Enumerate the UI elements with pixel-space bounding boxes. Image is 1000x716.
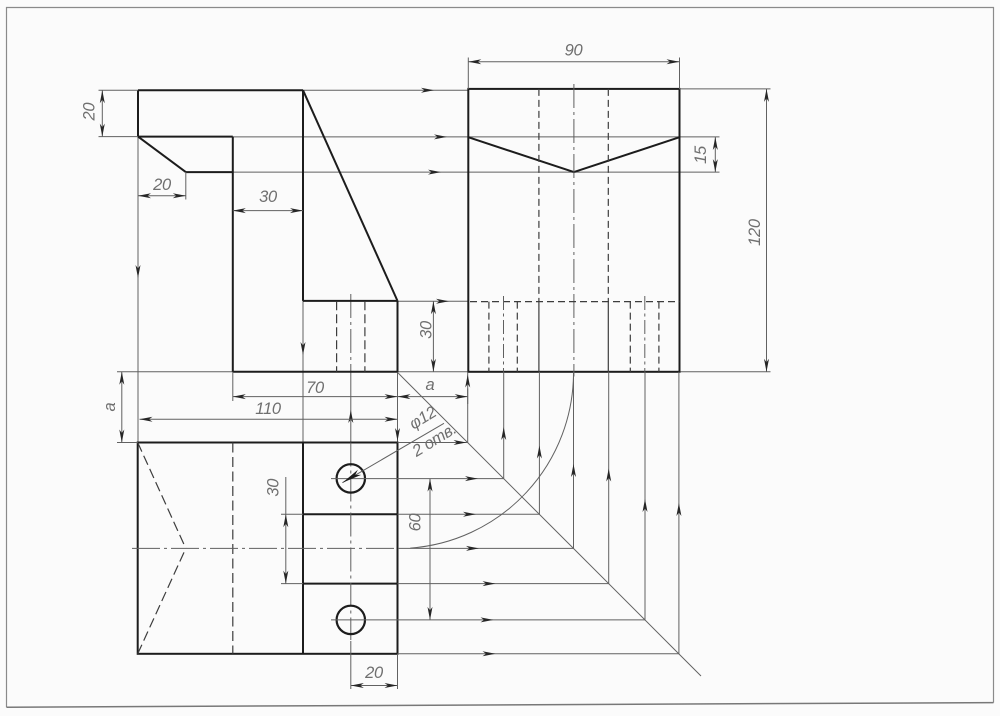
svg-text:a: a — [101, 402, 119, 411]
svg-text:20: 20 — [80, 102, 98, 122]
svg-text:30: 30 — [418, 320, 436, 339]
svg-text:90: 90 — [565, 42, 584, 60]
svg-text:a: a — [426, 376, 435, 394]
svg-text:70: 70 — [306, 379, 325, 397]
svg-text:30: 30 — [265, 478, 283, 497]
svg-text:15: 15 — [692, 145, 710, 164]
svg-text:20: 20 — [152, 176, 172, 194]
svg-text:30: 30 — [259, 188, 278, 206]
svg-text:20: 20 — [364, 664, 384, 682]
svg-text:120: 120 — [746, 218, 764, 246]
svg-text:60: 60 — [407, 513, 425, 532]
svg-text:110: 110 — [255, 400, 282, 418]
